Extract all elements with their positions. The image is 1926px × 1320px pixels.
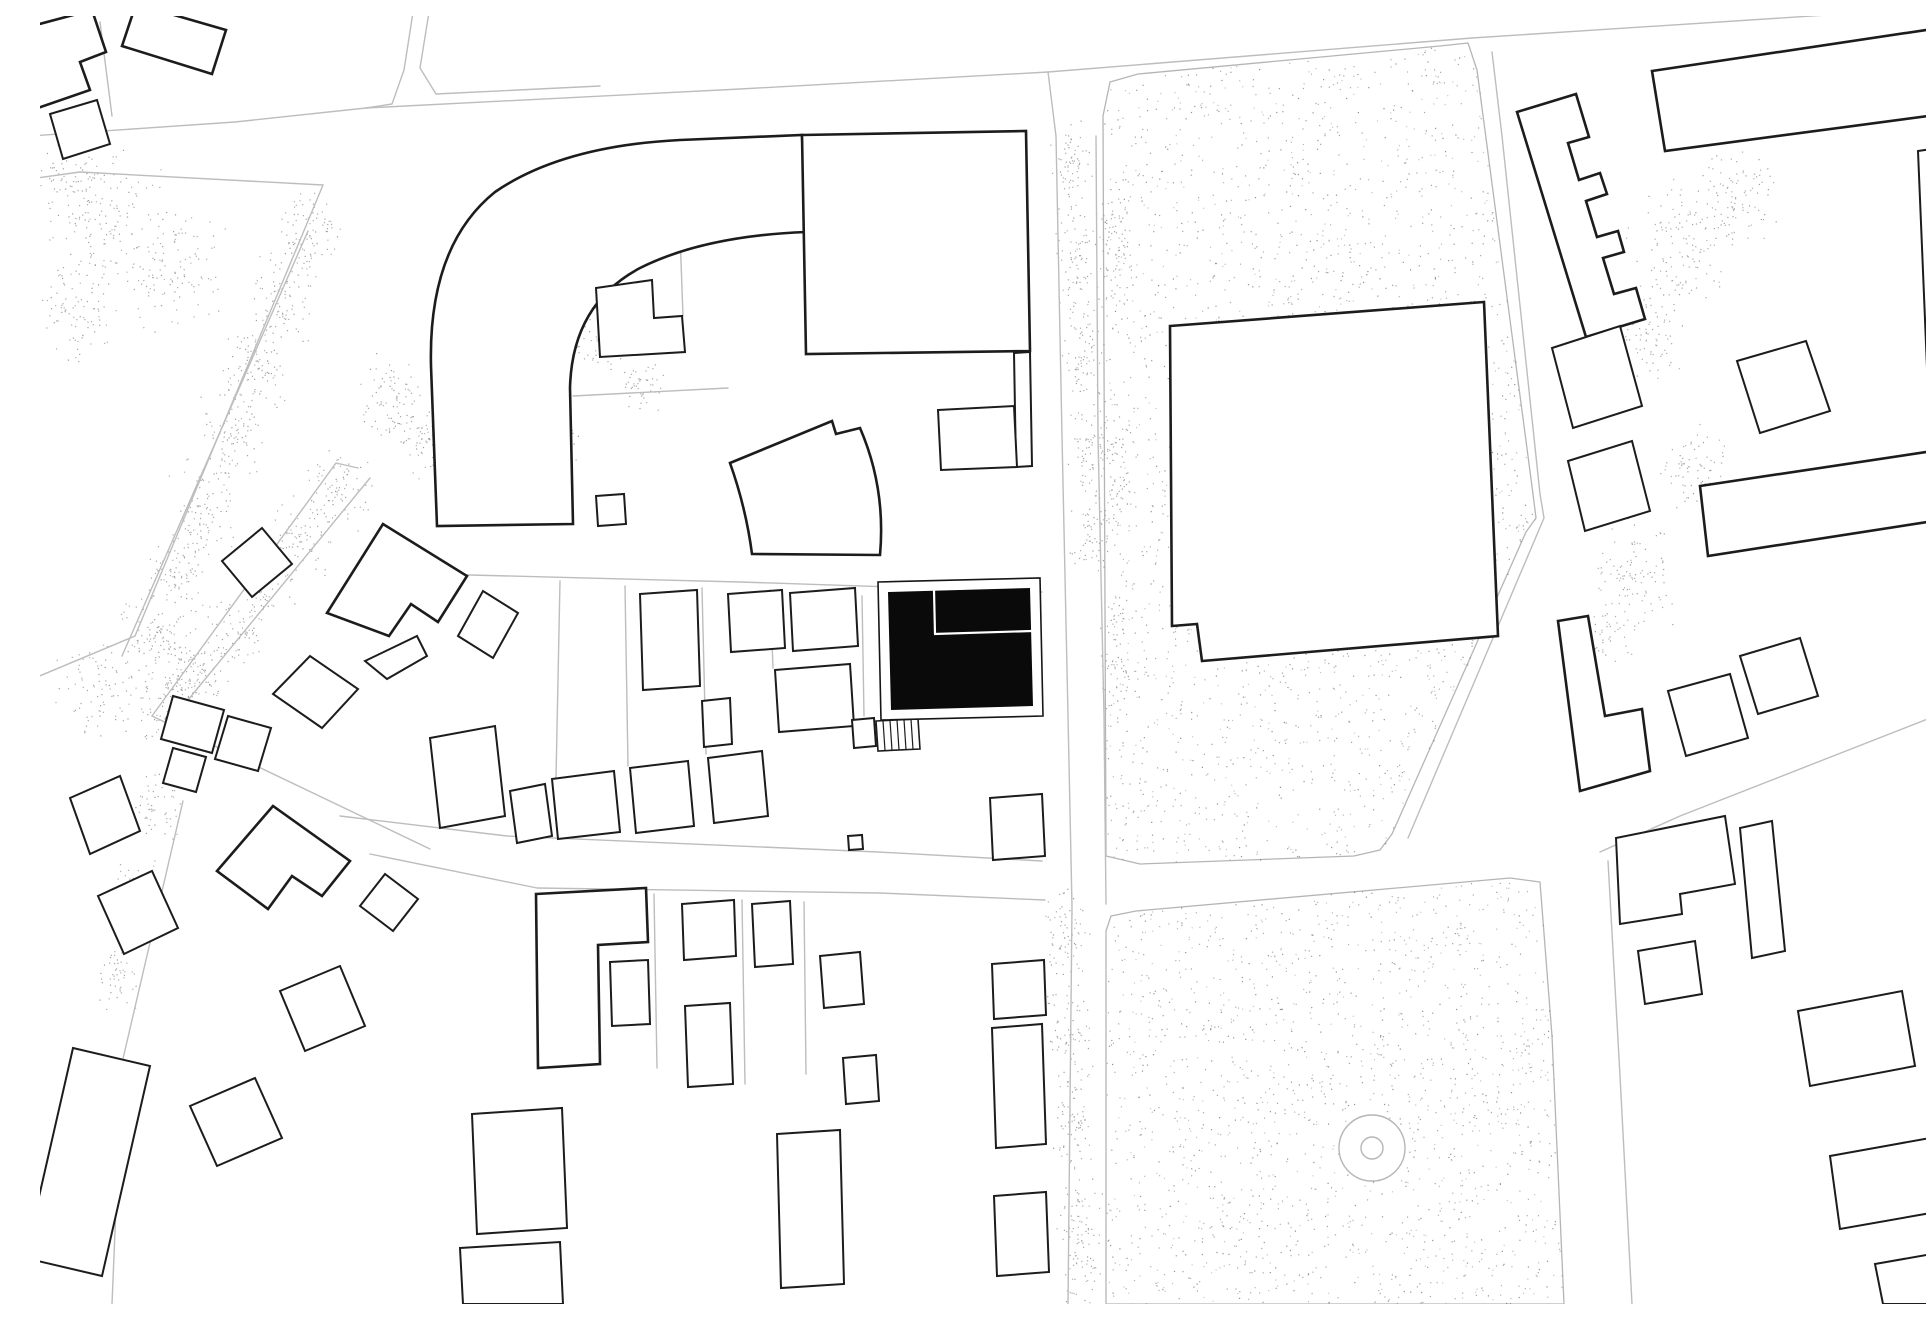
building-br-small bbox=[1638, 941, 1702, 1004]
building-m2-i bbox=[460, 1242, 563, 1304]
building-court-small bbox=[596, 494, 626, 526]
building-m1-par-c bbox=[790, 588, 858, 651]
building-court-se-annex bbox=[938, 406, 1017, 470]
building-m2-e bbox=[752, 901, 793, 967]
fountain-circle bbox=[1339, 1115, 1405, 1181]
building-court-ne-slab bbox=[802, 131, 1030, 354]
building-ml-east bbox=[430, 726, 505, 828]
site-building-mass bbox=[888, 588, 1033, 710]
site-plan-svg bbox=[40, 16, 1926, 1304]
garage-stripes bbox=[876, 719, 920, 751]
site-plan-canvas bbox=[40, 16, 1926, 1304]
site-building-divider bbox=[934, 590, 935, 634]
building-m2-d bbox=[685, 1003, 733, 1087]
building-street-col-c bbox=[992, 1024, 1046, 1148]
building-m2-j bbox=[472, 1108, 567, 1234]
building-m1-garage-house bbox=[852, 718, 876, 748]
building-m2-c bbox=[682, 900, 736, 960]
building-m2-g bbox=[843, 1055, 879, 1104]
building-street-col-d bbox=[994, 1192, 1049, 1276]
building-street-col-a bbox=[990, 794, 1045, 860]
site-plan bbox=[40, 16, 1926, 1304]
building-m2-b bbox=[610, 960, 650, 1026]
building-park-hall bbox=[1170, 302, 1498, 661]
park-lower bbox=[1106, 878, 1564, 1304]
building-m1-par-a bbox=[640, 590, 700, 690]
building-m1-row-c bbox=[630, 761, 694, 833]
building-m1-row-b bbox=[552, 771, 620, 839]
building-street-col-b bbox=[992, 960, 1046, 1019]
building-m1-row-a bbox=[510, 784, 552, 843]
building-m1-tiny bbox=[848, 835, 863, 850]
building-m2-h bbox=[777, 1130, 844, 1288]
building-m1-par-b bbox=[728, 590, 785, 652]
building-m1-row-d bbox=[708, 751, 768, 823]
building-m1-par-e bbox=[702, 698, 732, 747]
building-m1-par-d bbox=[775, 664, 854, 732]
building-m2-f bbox=[820, 952, 864, 1008]
fountain-inner-ring bbox=[1361, 1137, 1383, 1159]
site-building bbox=[878, 578, 1043, 720]
